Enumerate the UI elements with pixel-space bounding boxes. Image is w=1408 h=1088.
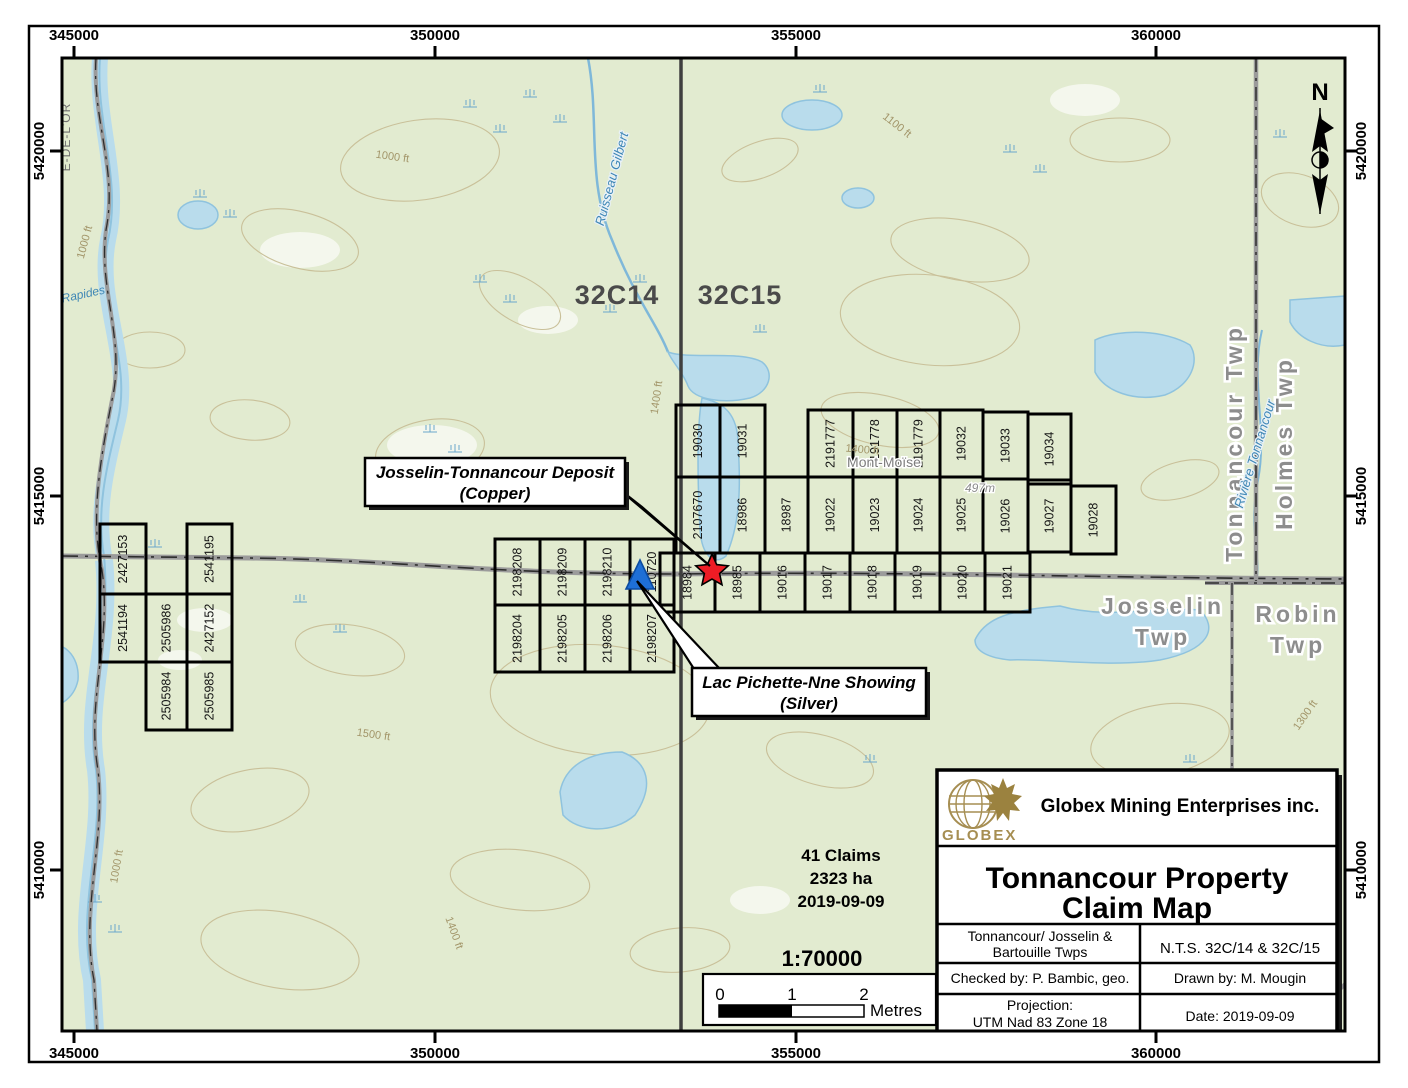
claim-number: 19024 <box>912 498 926 533</box>
pond <box>842 188 874 208</box>
drawn-by: Drawn by: M. Mougin <box>1174 970 1306 986</box>
claim-number: 2427152 <box>203 604 217 653</box>
claim-number: 19031 <box>736 424 750 459</box>
scale-unit: Metres <box>870 1001 922 1020</box>
claim-number: 19023 <box>868 498 882 533</box>
claim-number: 19018 <box>866 565 880 600</box>
claim-number: 18984 <box>681 565 695 600</box>
scale-tick-2: 2 <box>859 985 868 1004</box>
claim-number: 2198204 <box>511 614 525 663</box>
coord-left: 5415000 <box>31 467 48 525</box>
coord-bottom: 345000 <box>49 1045 99 1062</box>
lake-north <box>782 100 842 130</box>
claim-number: 18986 <box>736 498 750 533</box>
claim-number: 2198210 <box>601 548 615 597</box>
scale-tick-1: 1 <box>787 985 796 1004</box>
showing-callout-line1: Lac Pichette-Nne Showing <box>702 673 916 692</box>
claim-number: 19030 <box>691 424 705 459</box>
area-townships-line1: Tonnancour/ Josselin & <box>968 928 1113 944</box>
scale-tick-0: 0 <box>715 985 724 1004</box>
map-label-josselin: Josselin <box>1101 593 1225 619</box>
map-label-497m: 497m <box>965 481 995 495</box>
projection-line2: UTM Nad 83 Zone 18 <box>973 1014 1108 1030</box>
scale-ratio: 1:70000 <box>782 946 863 971</box>
claim-number: 2198206 <box>601 614 615 663</box>
map-canvas: 2427153254119525411942505986242715225059… <box>0 0 1408 1088</box>
deposit-callout-line1: Josselin-Tonnancour Deposit <box>376 463 616 482</box>
title-block: GLOBEX Globex Mining Enterprises inc. To… <box>937 770 1342 1038</box>
map-label-tonnancour-twp: Tonnancour Twp <box>1221 324 1247 562</box>
coord-bottom: 355000 <box>771 1045 821 1062</box>
scale-bar-filled <box>719 1005 792 1017</box>
projection-line1: Projection: <box>1007 997 1073 1013</box>
area-townships-line2: Bartouille Twps <box>993 944 1088 960</box>
checked-by: Checked by: P. Bambic, geo. <box>951 970 1130 986</box>
map-label-twp: Twp <box>1135 624 1191 650</box>
showing-callout: Lac Pichette-Nne Showing (Silver) <box>692 668 930 720</box>
lake-northeast <box>1095 332 1194 397</box>
north-label: N <box>1311 79 1328 106</box>
claim-number: 19034 <box>1043 432 1057 467</box>
map-title-line1: Tonnancour Property <box>986 862 1289 895</box>
coord-bottom: 350000 <box>410 1045 460 1062</box>
coord-top: 350000 <box>410 27 460 44</box>
claim-number: 19032 <box>955 426 969 461</box>
map-label-mont-mo-se: Mont-Moïse <box>847 454 921 470</box>
stats-claims: 41 Claims <box>801 846 880 865</box>
claim-number: 2198208 <box>511 548 525 597</box>
claim-number: 19021 <box>1001 565 1015 600</box>
claims-stats: 41 Claims 2323 ha 2019-09-09 <box>798 846 885 911</box>
clearing-patch <box>518 306 578 334</box>
claim-number: 18985 <box>731 565 745 600</box>
claim-number: 2198209 <box>556 548 570 597</box>
claim-number: 19026 <box>999 499 1013 534</box>
stats-date: 2019-09-09 <box>798 892 885 911</box>
clearing-patch <box>1050 84 1120 116</box>
coord-top: 345000 <box>49 27 99 44</box>
coord-left: 5410000 <box>31 841 48 899</box>
map-label-holmes-twp: Holmes Twp <box>1271 356 1297 530</box>
claim-number: 2505985 <box>203 672 217 721</box>
map-label-32c15: 32C15 <box>698 280 783 310</box>
claim-number: 2505986 <box>160 604 174 653</box>
claim-number: 2198205 <box>556 614 570 663</box>
map-label-32c14: 32C14 <box>575 280 660 310</box>
claim-number: 19017 <box>821 565 835 600</box>
coord-top: 360000 <box>1131 27 1181 44</box>
claim-number: 19019 <box>911 565 925 600</box>
claim-number: 18987 <box>780 498 794 533</box>
claim-number: 19016 <box>776 565 790 600</box>
map-label-robin: Robin <box>1255 601 1340 627</box>
claim-number: 19020 <box>956 565 970 600</box>
claim-number: 2505984 <box>160 672 174 721</box>
company-name: Globex Mining Enterprises inc. <box>1041 796 1320 817</box>
nts-reference: N.T.S. 32C/14 & 32C/15 <box>1160 940 1320 957</box>
showing-callout-line2: (Silver) <box>780 694 838 713</box>
map-label-twp: Twp <box>1270 632 1326 658</box>
claim-number: 19025 <box>955 498 969 533</box>
coord-top: 355000 <box>771 27 821 44</box>
claim-number: 19027 <box>1043 499 1057 534</box>
deposit-callout: Josselin-Tonnancour Deposit (Copper) <box>365 458 629 510</box>
pond-northwest <box>178 201 218 229</box>
claim-number: 19033 <box>999 428 1013 463</box>
claim-number: 19022 <box>824 498 838 533</box>
coord-bottom: 360000 <box>1131 1045 1181 1062</box>
clearing-patch <box>260 232 340 268</box>
claim-number: 19028 <box>1087 503 1101 538</box>
claim-number: 2107670 <box>691 491 705 540</box>
clearing-patch <box>730 886 790 914</box>
coord-right: 5420000 <box>1353 122 1370 180</box>
stats-area: 2323 ha <box>810 869 873 888</box>
map-body: 2427153254119525411942505986242715225059… <box>45 58 1346 1038</box>
claim-number: 2541194 <box>116 604 130 652</box>
deposit-callout-line2: (Copper) <box>460 484 531 503</box>
map-date: Date: 2019-09-09 <box>1186 1008 1295 1024</box>
claim-number: 2427153 <box>116 535 130 584</box>
claim-map-page: 2427153254119525411942505986242715225059… <box>0 0 1408 1088</box>
claim-number: 2541195 <box>203 535 217 583</box>
coord-right: 5410000 <box>1353 841 1370 899</box>
central-group: 2198208219820921982101107202198204219820… <box>495 539 674 672</box>
logo-wordmark: GLOBEX <box>942 827 1017 844</box>
map-title-line2: Claim Map <box>1062 892 1212 925</box>
claim-number: 2198207 <box>645 614 659 663</box>
coord-right: 5415000 <box>1353 467 1370 525</box>
coord-left: 5420000 <box>31 122 48 180</box>
claim-number: 2191777 <box>824 419 838 468</box>
